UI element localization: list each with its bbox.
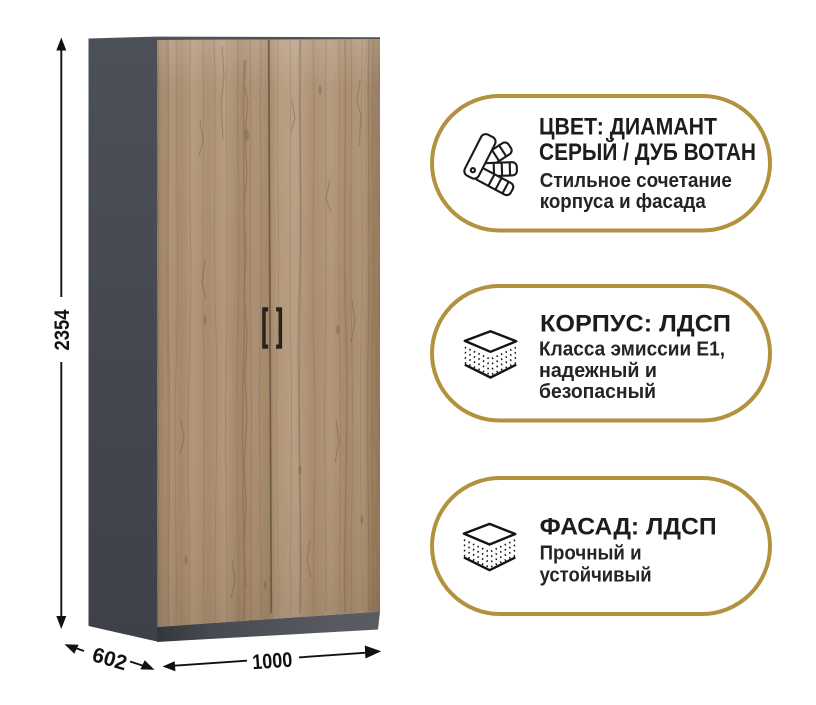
svg-text:1000: 1000 bbox=[252, 649, 294, 675]
svg-text:Стильное сочетание: Стильное сочетание bbox=[540, 169, 732, 192]
svg-text:надежный и: надежный и bbox=[539, 359, 657, 382]
svg-text:ЦВЕТ: ДИАМАНТ: ЦВЕТ: ДИАМАНТ bbox=[539, 114, 717, 141]
svg-text:корпуса и фасада: корпуса и фасада bbox=[540, 190, 707, 213]
svg-text:Прочный и: Прочный и bbox=[540, 542, 642, 565]
svg-text:безопасный: безопасный bbox=[539, 380, 656, 403]
svg-text:ФАСАД: ЛДСП: ФАСАД: ЛДСП bbox=[540, 514, 717, 541]
svg-text:602: 602 bbox=[90, 643, 130, 675]
svg-text:Класса эмиссии Е1,: Класса эмиссии Е1, bbox=[539, 338, 725, 361]
svg-text:устойчивый: устойчивый bbox=[540, 564, 652, 587]
svg-text:2354: 2354 bbox=[51, 309, 74, 350]
svg-text:СЕРЫЙ / ДУБ ВОТАН: СЕРЫЙ / ДУБ ВОТАН bbox=[539, 138, 756, 166]
svg-text:КОРПУС: ЛДСП: КОРПУС: ЛДСП bbox=[540, 310, 731, 337]
